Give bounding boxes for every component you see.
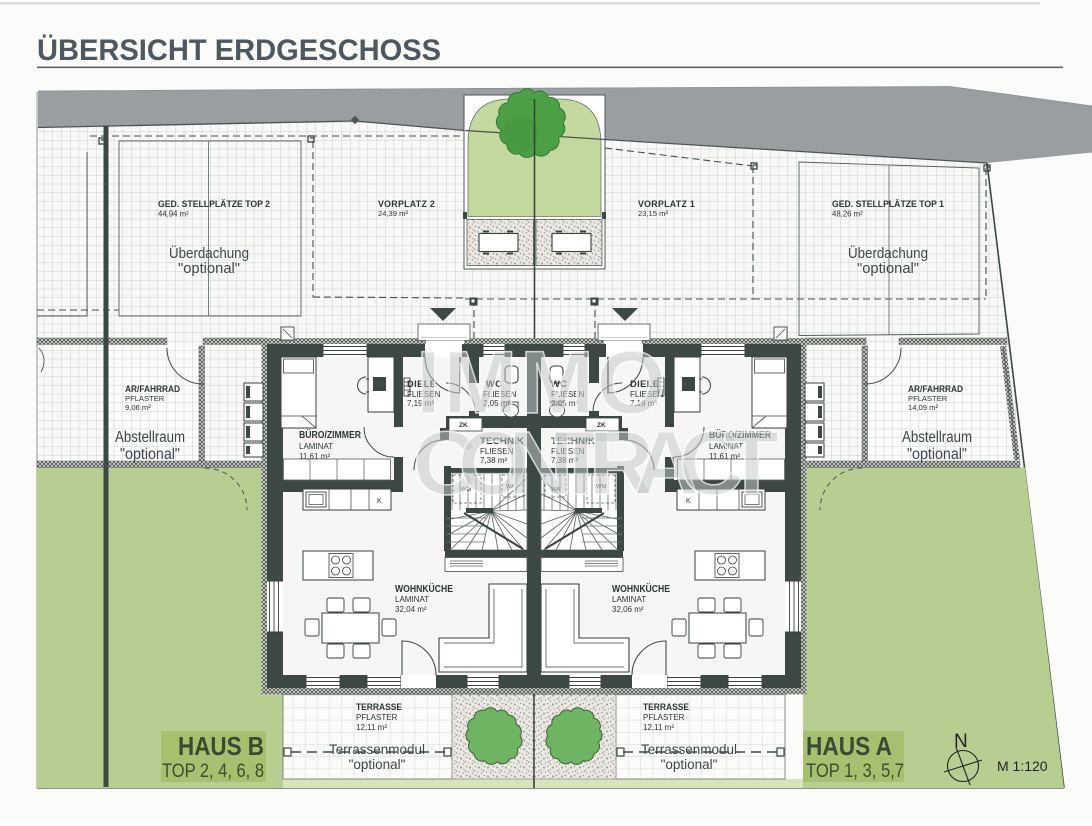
- svg-text:48,26 m²: 48,26 m²: [832, 210, 863, 219]
- svg-text:"optional": "optional": [857, 261, 919, 277]
- svg-text:AR/FAHRRAD: AR/FAHRRAD: [908, 384, 963, 394]
- svg-text:BÜRO/ZIMMER: BÜRO/ZIMMER: [299, 428, 362, 441]
- svg-text:LAMINAT: LAMINAT: [299, 442, 333, 451]
- svg-text:"optional": "optional": [349, 757, 406, 772]
- svg-text:PFLASTER: PFLASTER: [356, 713, 398, 722]
- svg-text:TERRASSE: TERRASSE: [356, 702, 402, 712]
- svg-text:9,06 m²: 9,06 m²: [125, 403, 151, 412]
- svg-text:ÜBERSICHT ERDGESCHOSS: ÜBERSICHT ERDGESCHOSS: [37, 34, 441, 67]
- svg-text:PFLASTER: PFLASTER: [125, 394, 165, 403]
- svg-text:12,11 m²: 12,11 m²: [643, 723, 674, 732]
- svg-text:Überdachung: Überdachung: [169, 244, 249, 262]
- svg-text:23,15 m²: 23,15 m²: [638, 209, 668, 218]
- svg-text:"optional": "optional": [120, 446, 180, 463]
- svg-text:32,04 m²: 32,04 m²: [395, 605, 427, 614]
- svg-text:VORPLATZ 1: VORPLATZ 1: [638, 199, 695, 209]
- svg-text:Terrassenmodul: Terrassenmodul: [329, 742, 425, 757]
- svg-text:PFLASTER: PFLASTER: [643, 713, 685, 722]
- svg-text:VORPLATZ 2: VORPLATZ 2: [378, 199, 435, 209]
- svg-text:"optional": "optional": [661, 757, 718, 772]
- svg-text:AR/FAHRRAD: AR/FAHRRAD: [125, 384, 180, 394]
- svg-text:GED. STELLPLÄTZE TOP 2: GED. STELLPLÄTZE TOP 2: [158, 199, 270, 209]
- svg-text:GED. STELLPLÄTZE TOP 1: GED. STELLPLÄTZE TOP 1: [832, 199, 944, 209]
- svg-text:Abstellraum: Abstellraum: [902, 429, 972, 446]
- svg-text:LAMINAT: LAMINAT: [612, 595, 646, 604]
- svg-text:CONTRACT: CONTRACT: [413, 414, 783, 514]
- svg-text:LAMINAT: LAMINAT: [395, 595, 429, 604]
- svg-text:11,61 m²: 11,61 m²: [299, 452, 330, 461]
- svg-text:TERRASSE: TERRASSE: [643, 702, 689, 712]
- svg-text:M 1:120: M 1:120: [997, 758, 1048, 774]
- svg-text:Terrassenmodul: Terrassenmodul: [641, 742, 737, 757]
- svg-text:24,39 m²: 24,39 m²: [378, 209, 408, 218]
- svg-text:12,11 m²: 12,11 m²: [356, 723, 387, 732]
- svg-text:K: K: [377, 498, 382, 505]
- svg-text:Überdachung: Überdachung: [848, 244, 928, 262]
- svg-text:Abstellraum: Abstellraum: [115, 429, 185, 446]
- svg-text:N: N: [954, 731, 968, 752]
- svg-text:"optional": "optional": [907, 446, 967, 463]
- svg-text:32,06 m²: 32,06 m²: [612, 605, 644, 614]
- svg-text:WOHNKÜCHE: WOHNKÜCHE: [612, 582, 670, 595]
- svg-text:HAUS B: HAUS B: [178, 731, 264, 761]
- svg-text:PFLASTER: PFLASTER: [908, 394, 948, 403]
- svg-text:HAUS A: HAUS A: [806, 731, 892, 761]
- svg-text:"optional": "optional": [178, 261, 240, 277]
- svg-text:TOP 2, 4, 6, 8: TOP 2, 4, 6, 8: [162, 761, 264, 782]
- svg-text:WOHNKÜCHE: WOHNKÜCHE: [395, 582, 453, 595]
- svg-text:44,94 m²: 44,94 m²: [158, 210, 189, 219]
- svg-text:14,09 m²: 14,09 m²: [908, 403, 938, 412]
- svg-text:TOP 1, 3, 5,7: TOP 1, 3, 5,7: [806, 761, 904, 782]
